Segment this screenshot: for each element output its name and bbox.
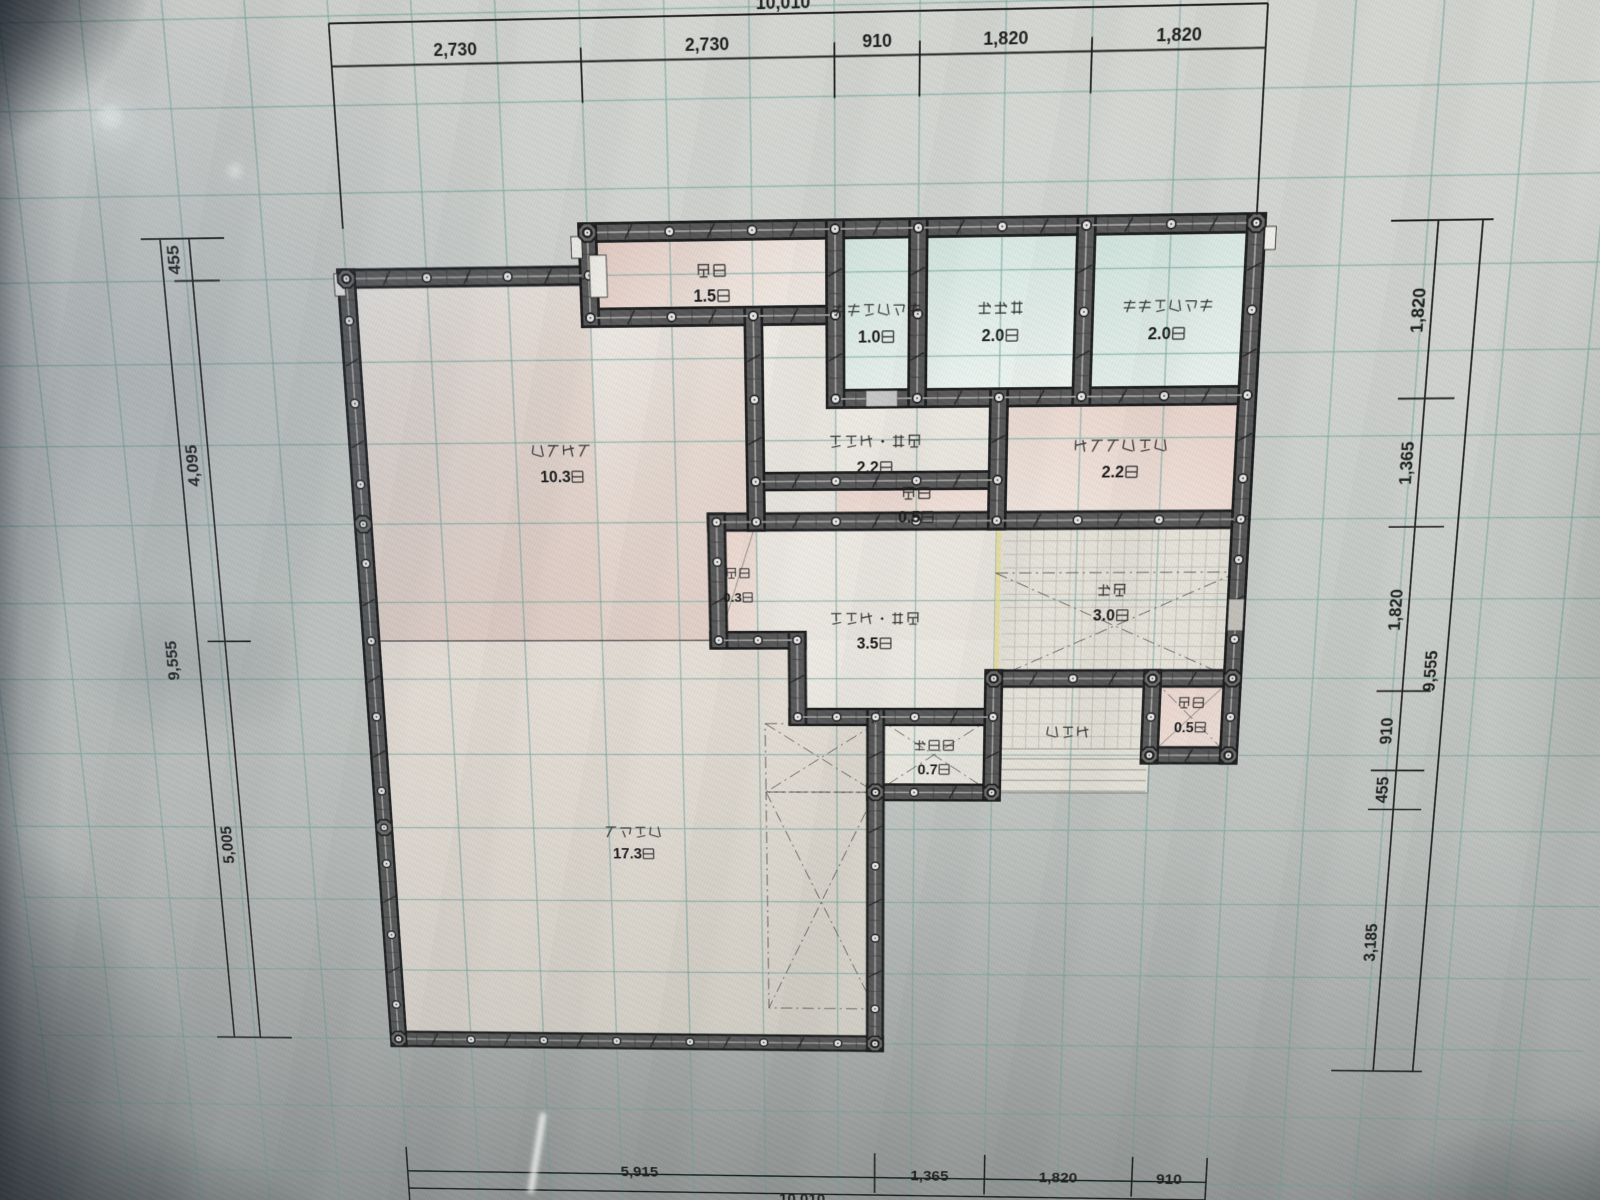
svg-text:10.3: 10.3 — [540, 467, 571, 486]
svg-text:10,010: 10,010 — [779, 1191, 825, 1200]
svg-text:0.5: 0.5 — [1174, 720, 1195, 735]
svg-text:1.0: 1.0 — [858, 327, 881, 347]
svg-text:3.5: 3.5 — [857, 634, 879, 652]
svg-text:5,005: 5,005 — [217, 826, 237, 864]
svg-text:17.3: 17.3 — [613, 845, 643, 862]
svg-text:910: 910 — [1156, 1171, 1183, 1187]
svg-text:0.3: 0.3 — [723, 591, 742, 605]
svg-text:1,820: 1,820 — [1156, 24, 1202, 46]
svg-text:2,730: 2,730 — [433, 39, 478, 61]
svg-text:2.2: 2.2 — [1101, 462, 1124, 481]
svg-text:9,555: 9,555 — [162, 641, 183, 681]
svg-text:2.2: 2.2 — [857, 458, 879, 477]
svg-text:4,095: 4,095 — [182, 445, 204, 487]
svg-text:2.0: 2.0 — [982, 325, 1005, 345]
svg-text:1,365: 1,365 — [910, 1168, 948, 1184]
svg-text:1.5: 1.5 — [693, 286, 716, 306]
svg-text:2,730: 2,730 — [685, 34, 730, 56]
svg-text:1,365: 1,365 — [1395, 441, 1417, 485]
svg-text:5,915: 5,915 — [620, 1164, 658, 1180]
svg-text:455: 455 — [163, 245, 184, 275]
svg-text:910: 910 — [1376, 718, 1396, 745]
svg-text:3.0: 3.0 — [1093, 606, 1116, 624]
svg-text:1,820: 1,820 — [1038, 1170, 1077, 1186]
svg-text:1,820: 1,820 — [983, 27, 1028, 49]
svg-text:2.0: 2.0 — [1148, 324, 1172, 344]
svg-text:0.5: 0.5 — [898, 508, 921, 527]
svg-text:9,555: 9,555 — [1419, 651, 1441, 692]
svg-text:1,820: 1,820 — [1407, 288, 1430, 333]
svg-text:0.7: 0.7 — [917, 762, 937, 778]
svg-text:3,185: 3,185 — [1360, 924, 1381, 962]
svg-text:910: 910 — [862, 30, 892, 52]
svg-text:10,010: 10,010 — [756, 0, 811, 14]
svg-text:455: 455 — [1372, 777, 1392, 803]
svg-text:1,820: 1,820 — [1385, 589, 1407, 631]
